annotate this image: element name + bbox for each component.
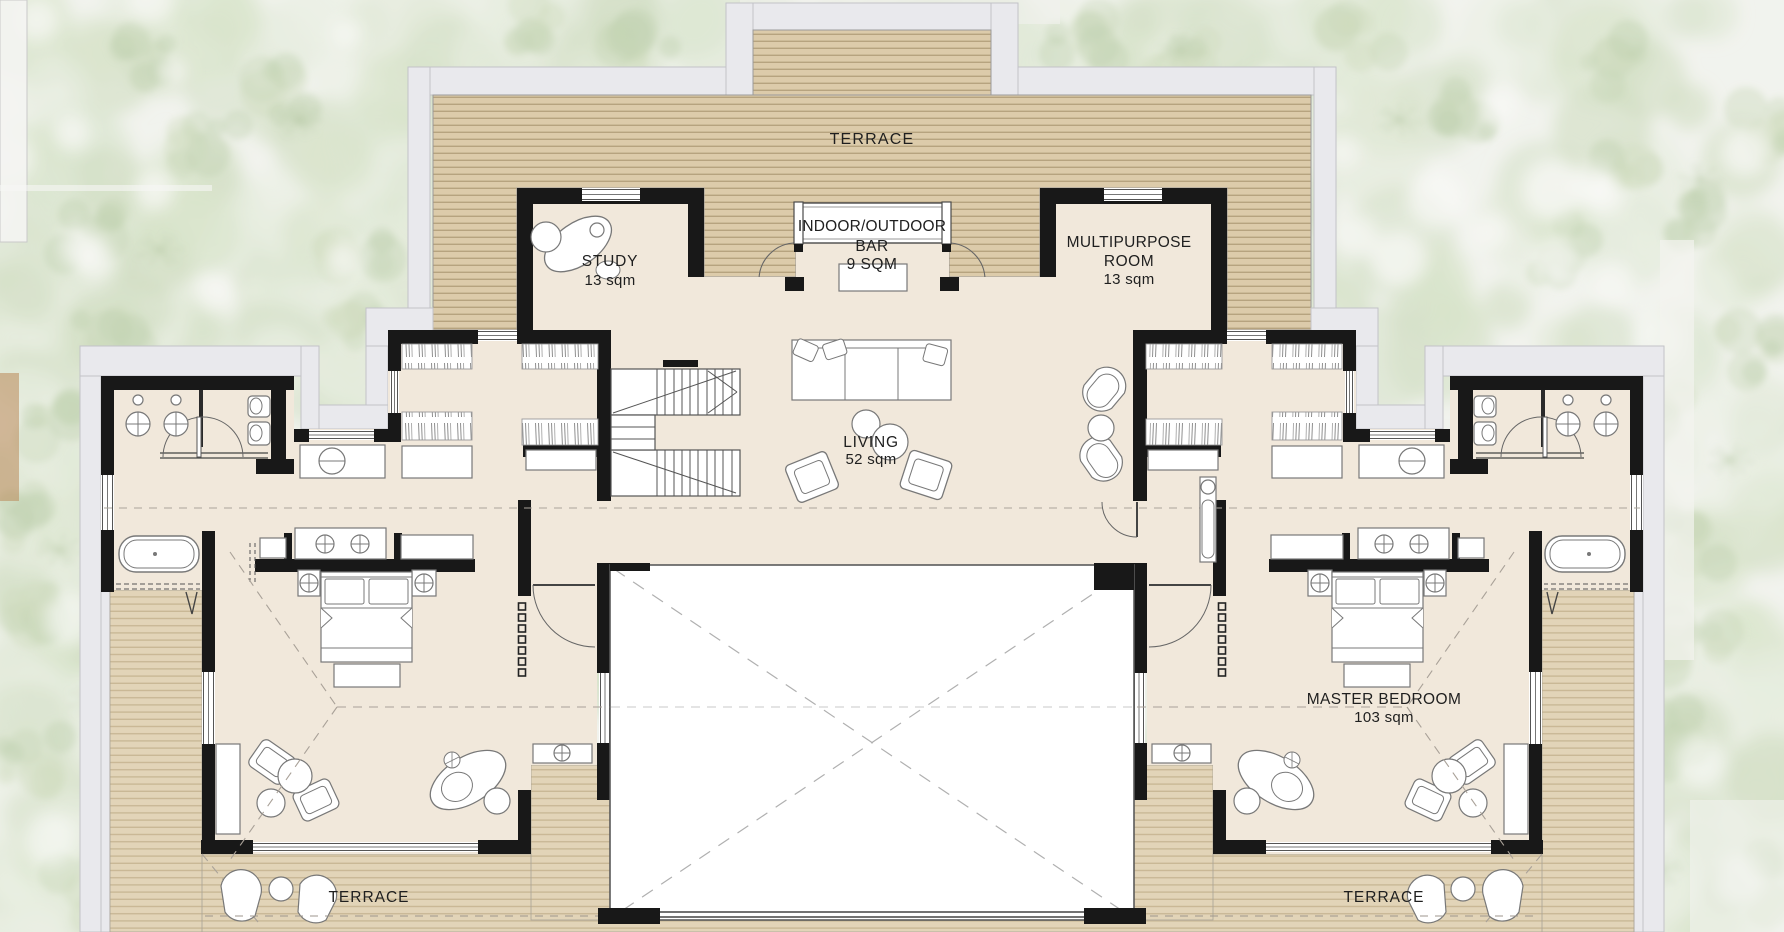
svg-text:103 sqm: 103 sqm: [1354, 709, 1414, 726]
svg-text:TERRACE: TERRACE: [328, 889, 409, 906]
svg-text:TERRACE: TERRACE: [1343, 889, 1424, 906]
svg-text:BAR: BAR: [855, 238, 888, 255]
svg-text:MASTER BEDROOM: MASTER BEDROOM: [1307, 691, 1462, 708]
svg-text:STUDY: STUDY: [582, 253, 639, 270]
svg-text:TERRACE: TERRACE: [830, 131, 915, 148]
svg-text:13 sqm: 13 sqm: [585, 272, 636, 289]
svg-text:13 sqm: 13 sqm: [1104, 271, 1155, 288]
svg-text:MULTIPURPOSE: MULTIPURPOSE: [1067, 234, 1192, 251]
svg-text:9 SQM: 9 SQM: [847, 256, 898, 273]
svg-text:INDOOR/OUTDOOR: INDOOR/OUTDOOR: [798, 218, 946, 235]
svg-text:ROOM: ROOM: [1104, 253, 1154, 270]
svg-text:LIVING: LIVING: [843, 434, 899, 451]
svg-text:52 sqm: 52 sqm: [846, 451, 897, 468]
